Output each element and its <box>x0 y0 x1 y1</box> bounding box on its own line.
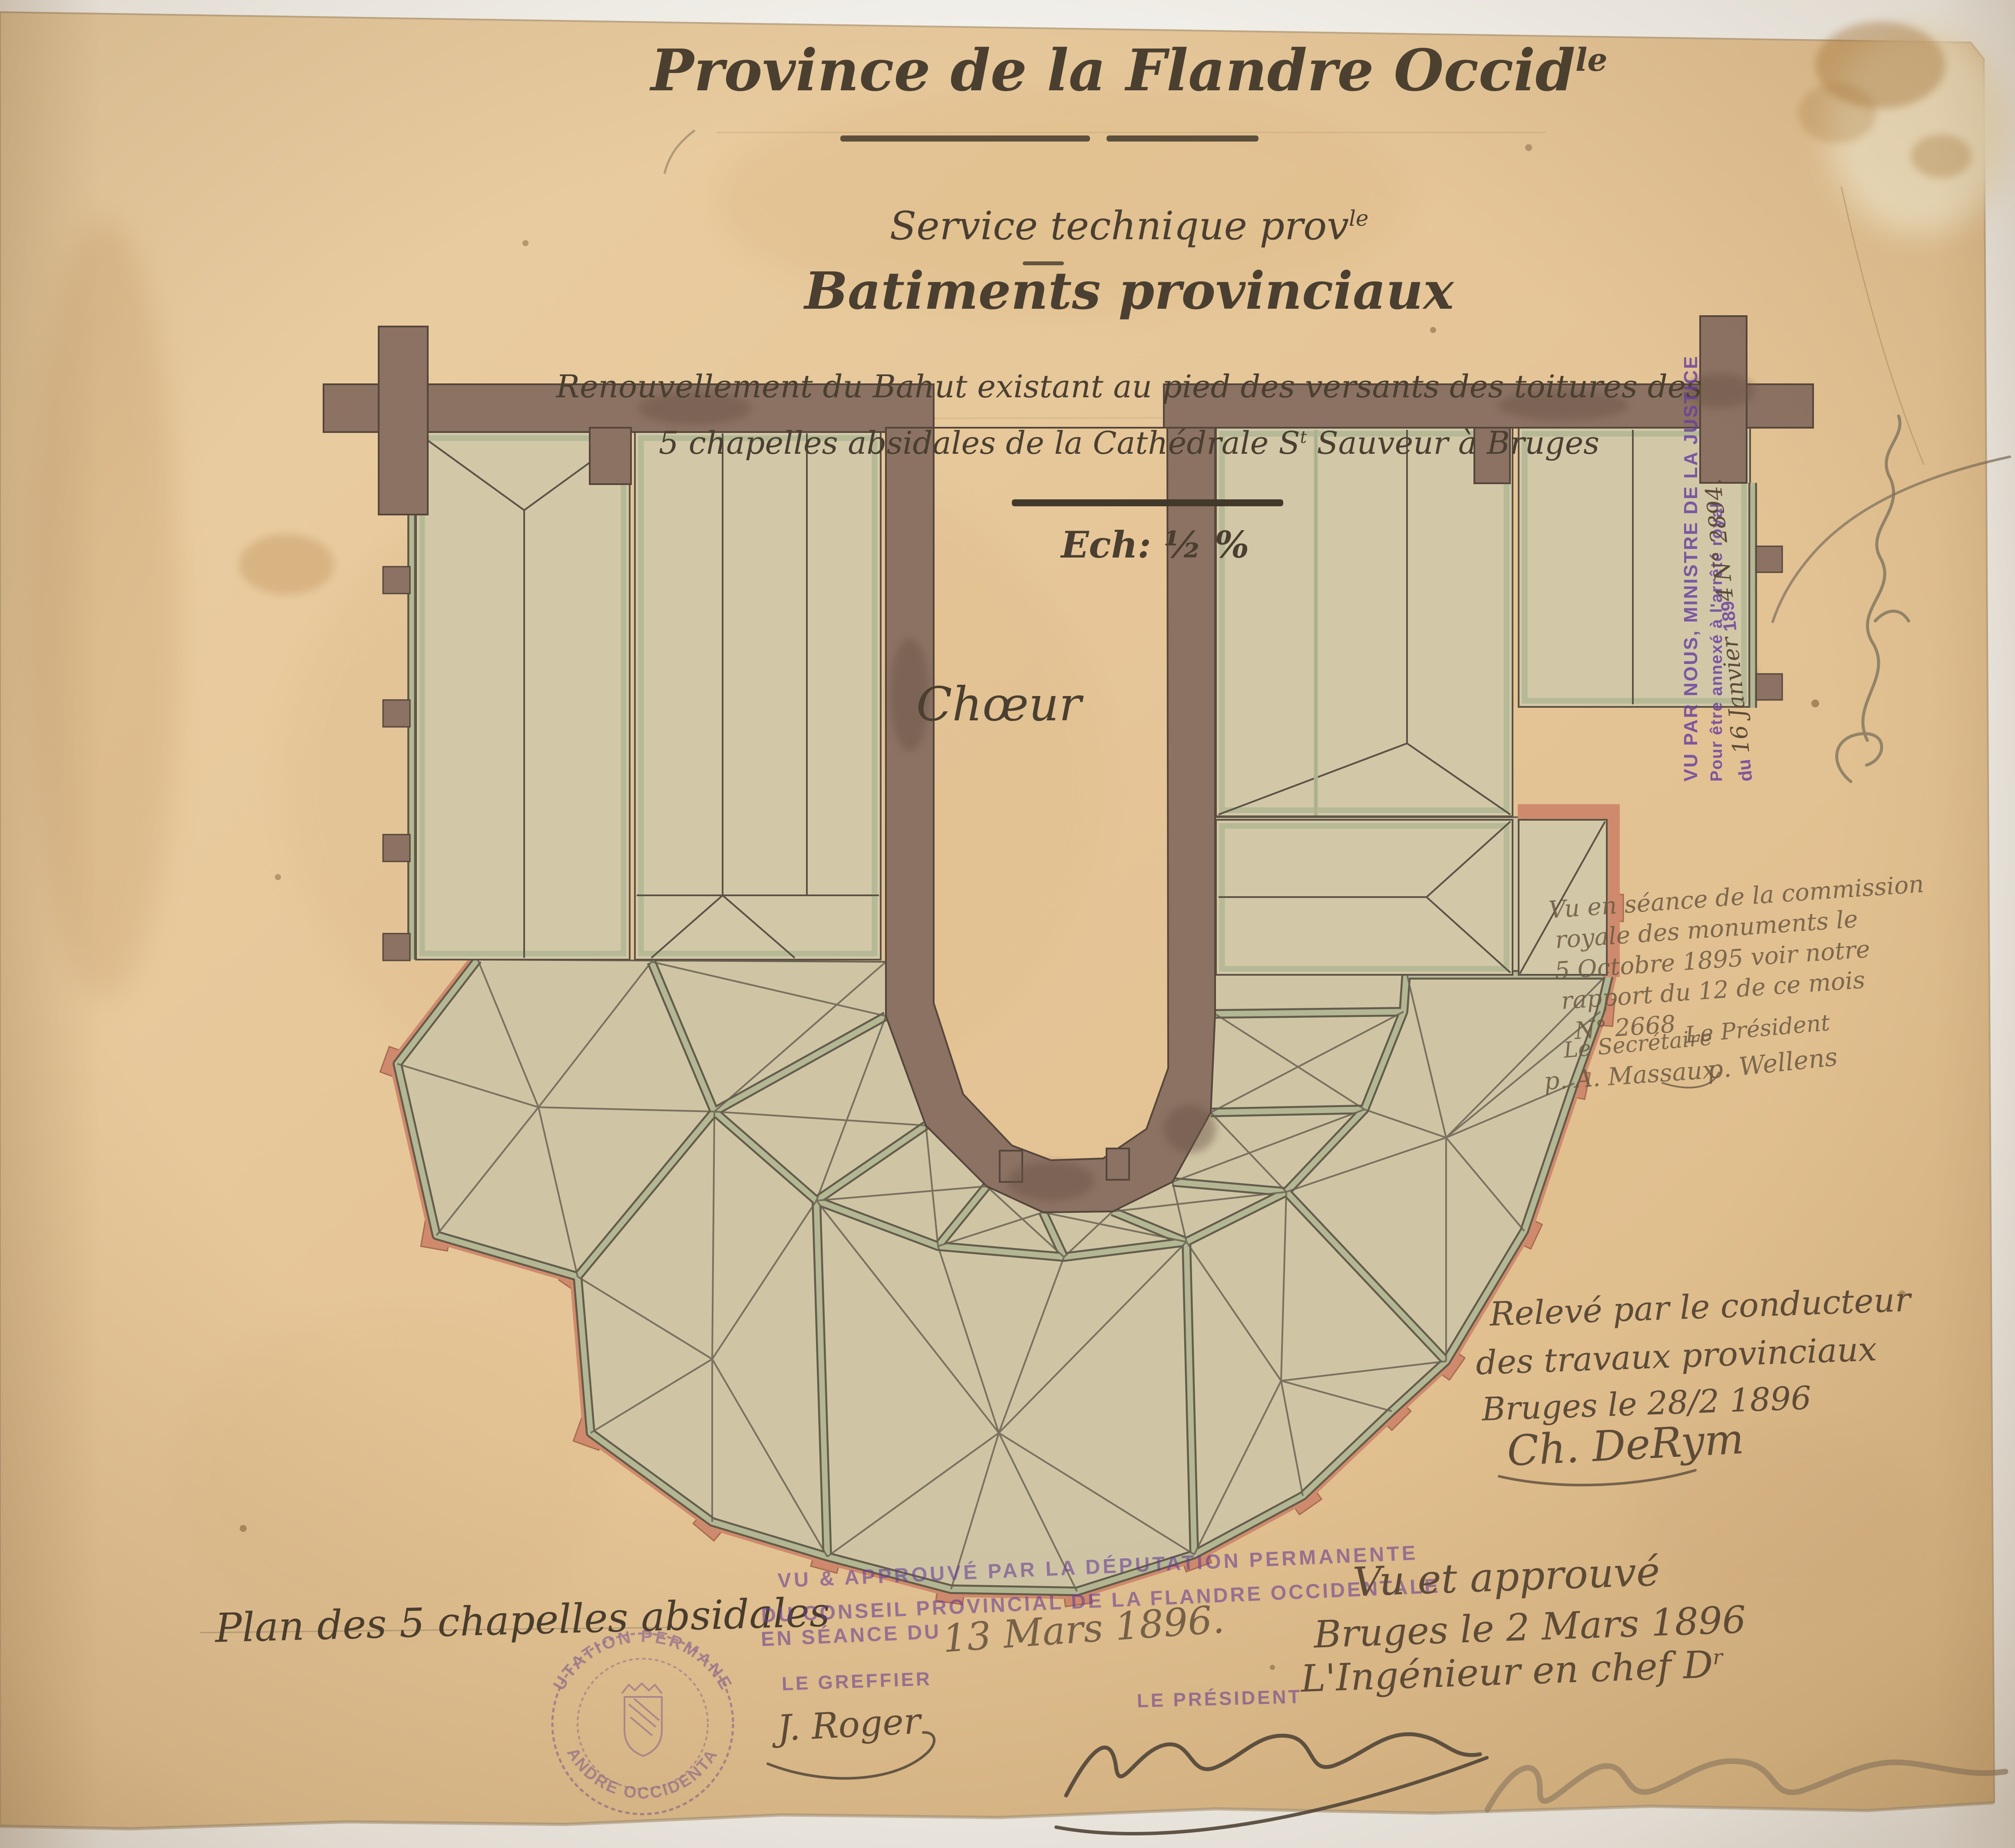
title-line-5-text2: Sauveur à Bruges <box>1307 425 1599 461</box>
title-line-2-sup: le <box>1349 206 1368 231</box>
title-line-5-text: 5 chapelles absidales de la Cathédrale S <box>659 425 1300 461</box>
stamp-du: du <box>1734 758 1756 782</box>
approval-line-3-sup: r <box>1712 1645 1723 1670</box>
choir-label: Chœur <box>908 677 1090 732</box>
president-title: LE PRÉSIDENT <box>1136 1686 1302 1712</box>
title-line-5: 5 chapelles absidales de la Cathédrale S… <box>543 425 1715 461</box>
title-line-1-sup: le <box>1576 42 1608 79</box>
justice-stamp: VU PAR NOUS, MINISTRE DE LA JUSTICE Pour… <box>1677 434 1803 782</box>
greffier-signature: J. Roger <box>776 1700 922 1749</box>
stamp-year: 189 <box>1717 600 1740 633</box>
stamp-year-hand: 4 <box>1711 586 1739 603</box>
title-rule <box>1012 499 1283 506</box>
title-line-1-text: Province de la Flandre Occid <box>651 37 1576 104</box>
title-line-2-text: Service technique prov <box>890 203 1349 249</box>
scale-label: Ech: ½ % <box>1042 523 1268 566</box>
title-line-3: Batiments provinciaux <box>673 261 1585 321</box>
title-line-1: Province de la Flandre Occidle <box>630 37 1629 104</box>
scanned-plan-document: DÉPUTATION PERMANENTE FLANDRE OCCIDENTAL… <box>0 0 2015 1848</box>
title-underline-1 <box>840 135 1090 142</box>
title-line-2: Service technique provle <box>738 203 1520 249</box>
title-line-4: Renouvellement du Bahut existant au pied… <box>499 368 1759 405</box>
title-line-5-sup: t <box>1300 427 1307 447</box>
title-underline-2 <box>1107 135 1259 142</box>
